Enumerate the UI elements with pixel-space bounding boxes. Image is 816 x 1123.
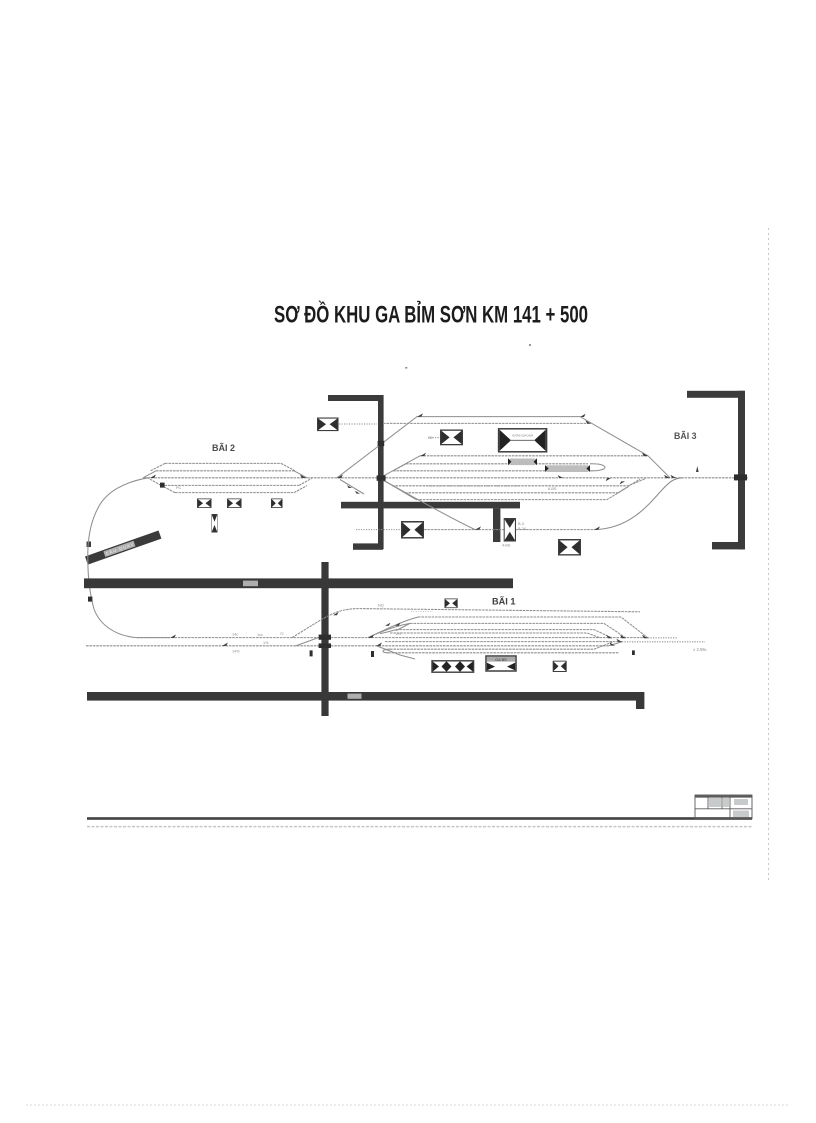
svg-text:GA BS: GA BS <box>495 658 507 662</box>
svg-text:XƯỞNG SỬA CHỮA: XƯỞNG SỬA CHỮA <box>512 432 534 437</box>
svg-text:B-X: B-X <box>518 522 525 526</box>
svg-text:B2: B2 <box>428 436 433 440</box>
svg-text:≥ 2.5‰: ≥ 2.5‰ <box>693 647 707 652</box>
svg-text:cc: cc <box>280 632 284 636</box>
svg-text:B-34: B-34 <box>518 527 526 531</box>
svg-text:1cc: 1cc <box>257 633 263 637</box>
svg-text:BÃI 3: BÃI 3 <box>674 431 697 441</box>
svg-text:14%: 14% <box>232 649 240 653</box>
svg-text:BÃI 1: BÃI 1 <box>492 597 516 607</box>
svg-text:6-BS: 6-BS <box>548 487 557 491</box>
svg-text:NQ: NQ <box>378 604 384 608</box>
svg-text:1%: 1% <box>263 641 269 645</box>
svg-text:2N: 2N <box>396 632 401 636</box>
svg-text:14c: 14c <box>232 632 238 636</box>
svg-text:4-BS: 4-BS <box>502 543 511 547</box>
svg-text:SƠ ĐỒ KHU GA BỈM SƠN KM 141 +: SƠ ĐỒ KHU GA BỈM SƠN KM 141 + 500 <box>274 300 588 329</box>
svg-text:BÃI 2: BÃI 2 <box>212 443 235 453</box>
svg-text:PC: PC <box>176 486 182 490</box>
